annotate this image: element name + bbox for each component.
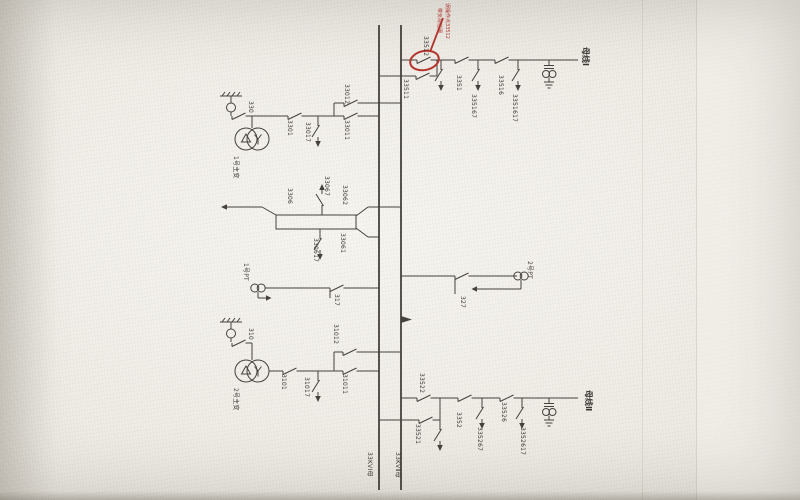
line-pt-cvt-2 xyxy=(543,398,557,426)
earth-switch-3351617 xyxy=(512,60,521,91)
label-3352: 3352 xyxy=(455,412,462,428)
disconnector-3301 xyxy=(288,113,302,120)
disconnector-327 xyxy=(455,273,469,280)
label-31012: 31012 xyxy=(332,324,339,344)
label-33511: 33511 xyxy=(402,79,409,99)
labels: 误操作点33512 带负荷拉闸 33512 33511 3351 335167 … xyxy=(232,3,594,478)
label-bus-1: 33KVⅠ母 xyxy=(366,452,373,477)
annotation-text-2: 带负荷拉闸 xyxy=(436,8,443,33)
disconnector-31012 xyxy=(343,349,357,356)
bay-section-3306 xyxy=(221,184,401,260)
disconnector-33512 xyxy=(417,57,431,64)
earth-switch-335167 xyxy=(472,60,481,91)
label-33521: 33521 xyxy=(414,424,421,444)
photo-bottom-shadow xyxy=(0,491,800,500)
disconnector-33526 xyxy=(500,395,514,402)
label-33516: 33516 xyxy=(497,75,504,95)
label-transformer-1: 1号主变 xyxy=(232,156,240,179)
label-line-1: 母线Ⅰ xyxy=(581,47,591,66)
label-33061: 33061 xyxy=(339,233,346,253)
bus-2-flag-marker xyxy=(401,316,412,323)
label-310: 310 xyxy=(247,328,254,340)
label-bus-2: 33KVⅡ母 xyxy=(394,452,401,478)
label-line-2: 母线Ⅱ xyxy=(584,390,594,411)
disconnector-3352 xyxy=(458,395,472,402)
label-33012: 33012 xyxy=(343,84,350,104)
label-330: 330 xyxy=(247,101,254,113)
label-3101: 3101 xyxy=(280,374,287,390)
label-33011: 33011 xyxy=(343,120,350,140)
pt-1-symbol xyxy=(251,284,265,292)
label-33017: 33017 xyxy=(304,122,311,142)
earth-switch-3352617 xyxy=(516,398,525,429)
label-335267: 335267 xyxy=(476,427,483,451)
single-line-diagram: 误操作点33512 带负荷拉闸 33512 33511 3351 335167 … xyxy=(0,0,800,500)
arrester-ground-2 xyxy=(220,318,242,342)
label-3306: 3306 xyxy=(286,188,293,204)
label-pt-2: 2号PT xyxy=(526,261,533,279)
disconnector-3351 xyxy=(455,57,469,64)
line-pt-cvt xyxy=(543,60,557,88)
diagram-photo: 误操作点33512 带负荷拉闸 33512 33511 3351 335167 … xyxy=(0,0,800,500)
label-3301: 3301 xyxy=(286,120,293,136)
label-pt-1: 1号PT xyxy=(242,263,249,281)
label-327: 327 xyxy=(459,296,466,308)
bay-pt-2 xyxy=(401,272,528,294)
arrester-ground xyxy=(220,92,242,116)
transformer-2-symbol xyxy=(235,360,269,382)
label-3352617: 3352617 xyxy=(519,427,526,455)
disconnector-33011 xyxy=(344,113,358,120)
bay-pt-1 xyxy=(251,284,379,301)
earth-switch-line-side-2 xyxy=(434,420,443,451)
disconnector-317 xyxy=(330,285,344,292)
label-33062: 33062 xyxy=(341,185,348,205)
earth-switch-31017 xyxy=(312,371,321,402)
label-transformer-2: 2号主变 xyxy=(232,388,240,411)
disconnector-330 xyxy=(232,113,246,120)
earth-switch-335267 xyxy=(476,398,485,429)
label-330617: 330617 xyxy=(312,238,319,262)
disconnector-310 xyxy=(232,340,246,347)
label-3351617: 3351617 xyxy=(511,94,518,122)
label-33067: 33067 xyxy=(323,176,330,196)
paper-edge-line xyxy=(642,0,643,500)
label-33512: 33512 xyxy=(422,36,429,56)
transformer-1-symbol xyxy=(235,128,269,150)
disconnector-33521 xyxy=(419,417,433,424)
label-33522: 33522 xyxy=(418,373,425,393)
disconnector-33511 xyxy=(416,73,430,80)
label-335167: 335167 xyxy=(470,94,477,118)
annotation-text-1: 误操作点33512 xyxy=(444,3,451,39)
disconnector-33522 xyxy=(417,395,431,402)
disconnector-33516 xyxy=(495,57,509,64)
label-31017: 31017 xyxy=(303,377,310,397)
label-31011: 31011 xyxy=(341,374,348,394)
label-33526: 33526 xyxy=(500,402,507,422)
paper-right-edge xyxy=(696,0,800,500)
label-317: 317 xyxy=(333,294,340,306)
label-3351: 3351 xyxy=(455,75,462,91)
earth-switch-33017 xyxy=(312,116,321,147)
